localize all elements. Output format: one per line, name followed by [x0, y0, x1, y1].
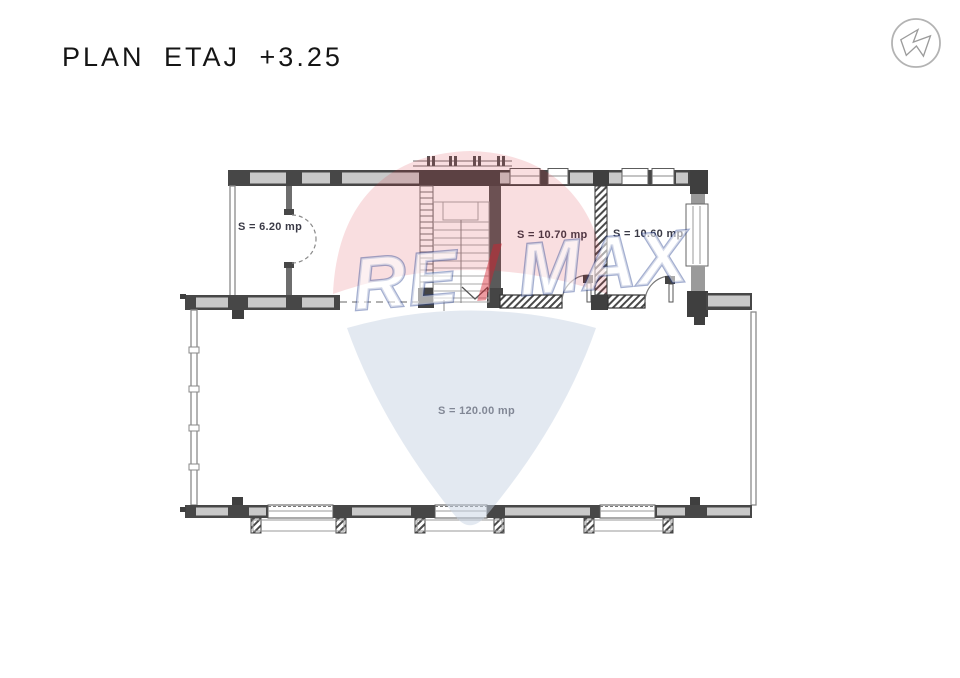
right-thin-wall: [751, 312, 756, 505]
watermark-slash: /: [471, 230, 509, 315]
room-6-20: S = 6.20 mp: [230, 186, 316, 300]
left-glazed-wall: [189, 310, 199, 505]
balloon-bottom: [347, 311, 596, 526]
floor-plan-page: PLAN ETAJ +3.25: [0, 0, 960, 678]
watermark-re: RE: [349, 234, 463, 326]
remax-watermark: RE / MAX: [333, 151, 695, 525]
floor-plan-canvas: S = 6.20 mp: [0, 0, 960, 678]
watermark-max: MAX: [515, 214, 695, 312]
window-right-10-60: [686, 204, 708, 266]
room-label-6-20: S = 6.20 mp: [238, 221, 302, 233]
top-right-window: [687, 291, 752, 325]
